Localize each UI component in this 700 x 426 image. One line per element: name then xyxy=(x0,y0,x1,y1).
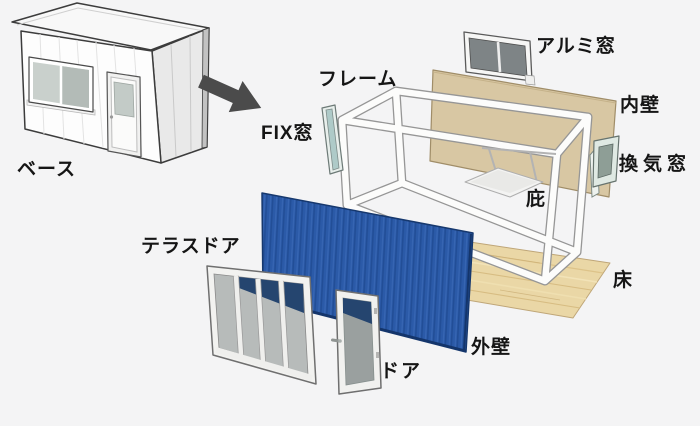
fix-window-part xyxy=(322,105,343,174)
label-outer-wall: 外壁 xyxy=(471,338,511,357)
label-inner-wall: 内壁 xyxy=(620,96,660,115)
label-door: ドア xyxy=(380,362,422,381)
label-floor: 床 xyxy=(613,271,633,290)
door-part xyxy=(331,290,381,394)
base-house-window xyxy=(27,57,95,115)
label-eaves: 庇 xyxy=(526,190,546,209)
label-terrace-door: テラスドア xyxy=(141,237,241,256)
label-vent-window: 換気窓 xyxy=(619,155,691,174)
label-frame: フレーム xyxy=(318,70,397,89)
terrace-door-part xyxy=(207,266,316,384)
label-aluminum-window: アルミ窓 xyxy=(536,37,616,56)
base-house-door xyxy=(107,72,141,157)
base-house xyxy=(12,3,209,163)
diagram-canvas xyxy=(0,0,700,426)
label-base: ベース xyxy=(17,160,76,179)
label-fix-window: FIX窓 xyxy=(261,124,314,143)
exploded-view-diagram: ベース フレーム FIX窓 アルミ窓 内壁 換気窓 庇 床 テラスドア 外壁 ド… xyxy=(0,0,700,426)
